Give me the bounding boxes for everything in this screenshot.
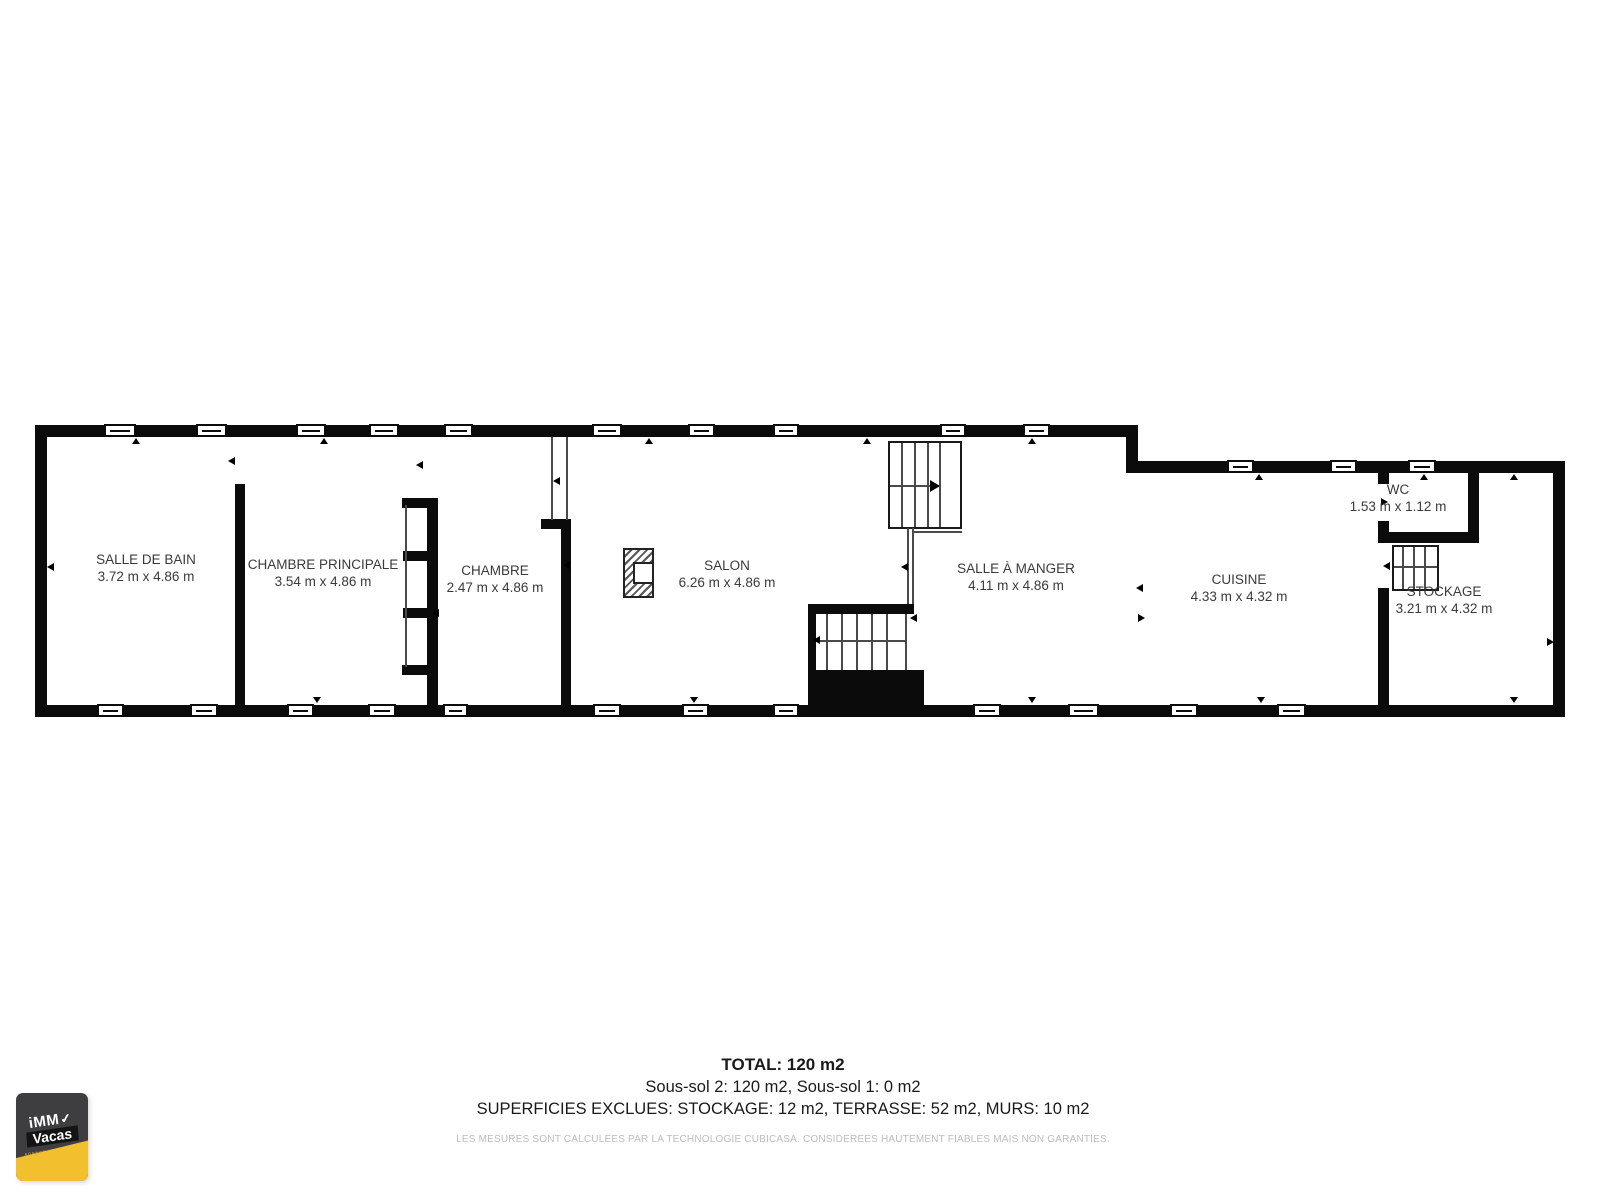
window-symbol xyxy=(1227,460,1254,473)
plan-line xyxy=(826,614,828,670)
room-label-chambre: CHAMBRE 2.47 m x 4.86 m xyxy=(447,562,544,596)
window-symbol xyxy=(682,704,709,717)
window-symbol xyxy=(1277,704,1306,717)
floorplan-page: SALLE DE BAIN 3.72 m x 4.86 m CHAMBRE PR… xyxy=(0,0,1600,1200)
wall-segment xyxy=(403,551,431,561)
levels-areas: Sous-sol 2: 120 m2, Sous-sol 1: 0 m2 xyxy=(0,1076,1566,1098)
wall-segment xyxy=(1378,532,1479,543)
window-symbol xyxy=(104,424,136,437)
window-symbol xyxy=(1068,704,1099,717)
room-label-wc: WC 1.53 m x 1.12 m xyxy=(1350,481,1447,515)
wall-segment xyxy=(1468,473,1479,543)
measurement-disclaimer: LES MESURES SONT CALCULEES PAR LA TECHNO… xyxy=(0,1134,1566,1146)
wall-segment xyxy=(35,705,1565,717)
room-label-salle-de-bain: SALLE DE BAIN 3.72 m x 4.86 m xyxy=(96,551,196,585)
door-direction-marker xyxy=(320,438,328,444)
door-direction-marker xyxy=(1138,614,1145,622)
window-symbol xyxy=(973,704,1001,717)
agency-logo: iMM✓ Vacas AGENCE IMMOBILIERE xyxy=(16,1093,88,1181)
room-dims: 2.47 m x 4.86 m xyxy=(447,579,544,596)
room-label-salle-a-manger: SALLE À MANGER 4.11 m x 4.86 m xyxy=(957,560,1075,594)
door-direction-marker xyxy=(1028,438,1036,444)
window-symbol xyxy=(1330,460,1357,473)
window-symbol xyxy=(190,704,218,717)
door-direction-marker xyxy=(1383,562,1390,570)
window-symbol xyxy=(196,424,227,437)
door-direction-marker xyxy=(910,614,917,622)
door-direction-marker xyxy=(228,457,235,465)
door-direction-marker xyxy=(1510,474,1518,480)
window-symbol xyxy=(1170,704,1198,717)
window-symbol xyxy=(1023,424,1050,437)
wall-segment xyxy=(403,608,431,618)
room-label-cuisine: CUISINE 4.33 m x 4.32 m xyxy=(1191,571,1288,605)
door-direction-marker xyxy=(1420,474,1428,480)
summary-block: TOTAL: 120 m2 Sous-sol 2: 120 m2, Sous-s… xyxy=(0,1054,1566,1146)
plan-line xyxy=(405,505,407,667)
window-symbol xyxy=(773,424,799,437)
room-name: SALLE À MANGER xyxy=(957,560,1075,577)
plan-line xyxy=(905,614,907,670)
wall-segment xyxy=(1378,588,1389,717)
door-direction-marker xyxy=(1510,697,1518,703)
door-direction-marker xyxy=(690,697,698,703)
room-label-salon: SALON 6.26 m x 4.86 m xyxy=(679,557,776,591)
window-symbol xyxy=(444,424,473,437)
room-dims: 4.11 m x 4.86 m xyxy=(957,577,1075,594)
plan-line xyxy=(871,614,873,670)
door-direction-marker xyxy=(47,563,54,571)
plan-line xyxy=(566,437,568,520)
wall-segment xyxy=(808,670,924,717)
door-direction-marker xyxy=(1257,697,1265,703)
window-symbol xyxy=(287,704,314,717)
door-direction-marker xyxy=(901,563,908,571)
window-symbol xyxy=(1408,460,1436,473)
door-direction-marker xyxy=(563,561,570,569)
room-dims: 4.33 m x 4.32 m xyxy=(1191,588,1288,605)
door-direction-marker xyxy=(416,461,423,469)
wall-segment xyxy=(402,498,438,508)
room-name: CHAMBRE xyxy=(447,562,544,579)
door-direction-marker xyxy=(813,636,820,644)
window-symbol xyxy=(296,424,326,437)
plan-line xyxy=(913,531,962,533)
door-direction-marker xyxy=(432,609,439,617)
room-name: CUISINE xyxy=(1191,571,1288,588)
plan-line xyxy=(886,614,888,670)
door-direction-marker xyxy=(645,438,653,444)
window-symbol xyxy=(443,704,468,717)
room-label-chambre-principale: CHAMBRE PRINCIPALE 3.54 m x 4.86 m xyxy=(248,556,399,590)
room-label-stockage: STOCKAGE 3.21 m x 4.32 m xyxy=(1396,583,1493,617)
window-symbol xyxy=(369,424,399,437)
window-symbol xyxy=(773,704,799,717)
wall-segment xyxy=(808,604,914,614)
room-name: SALLE DE BAIN xyxy=(96,551,196,568)
room-dims: 1.53 m x 1.12 m xyxy=(1350,498,1447,515)
room-name: SALON xyxy=(679,557,776,574)
window-symbol xyxy=(688,424,715,437)
plan-line xyxy=(841,614,843,670)
room-dims: 6.26 m x 4.86 m xyxy=(679,574,776,591)
plan-line xyxy=(1394,566,1437,568)
room-name: STOCKAGE xyxy=(1396,583,1493,600)
room-name: WC xyxy=(1350,481,1447,498)
window-symbol xyxy=(593,704,621,717)
door-direction-marker xyxy=(1547,638,1554,646)
room-dims: 3.54 m x 4.86 m xyxy=(248,573,399,590)
window-symbol xyxy=(940,424,966,437)
wall-segment xyxy=(235,484,245,705)
plan-line xyxy=(912,528,914,607)
wall-segment xyxy=(35,425,47,717)
plan-line xyxy=(816,640,906,642)
door-direction-marker xyxy=(1028,697,1036,703)
door-direction-marker xyxy=(553,477,560,485)
door-direction-marker xyxy=(1136,584,1143,592)
door-direction-marker xyxy=(930,480,940,492)
excluded-areas: SUPERFICIES EXCLUES: STOCKAGE: 12 m2, TE… xyxy=(0,1098,1566,1120)
window-symbol xyxy=(368,704,396,717)
door-direction-marker xyxy=(313,697,321,703)
room-dims: 3.21 m x 4.32 m xyxy=(1396,600,1493,617)
door-direction-marker xyxy=(132,438,140,444)
window-symbol xyxy=(592,424,622,437)
wall-segment xyxy=(561,519,571,705)
plan-line xyxy=(856,614,858,670)
room-name: CHAMBRE PRINCIPALE xyxy=(248,556,399,573)
door-direction-marker xyxy=(1255,474,1263,480)
wall-segment xyxy=(1553,461,1565,717)
fireplace-hearth xyxy=(633,562,654,584)
window-symbol xyxy=(97,704,124,717)
fireplace xyxy=(623,548,654,598)
total-area: TOTAL: 120 m2 xyxy=(0,1054,1566,1076)
check-icon: ✓ xyxy=(59,1110,72,1126)
door-direction-marker xyxy=(863,438,871,444)
room-dims: 3.72 m x 4.86 m xyxy=(96,568,196,585)
wall-segment xyxy=(402,665,438,675)
